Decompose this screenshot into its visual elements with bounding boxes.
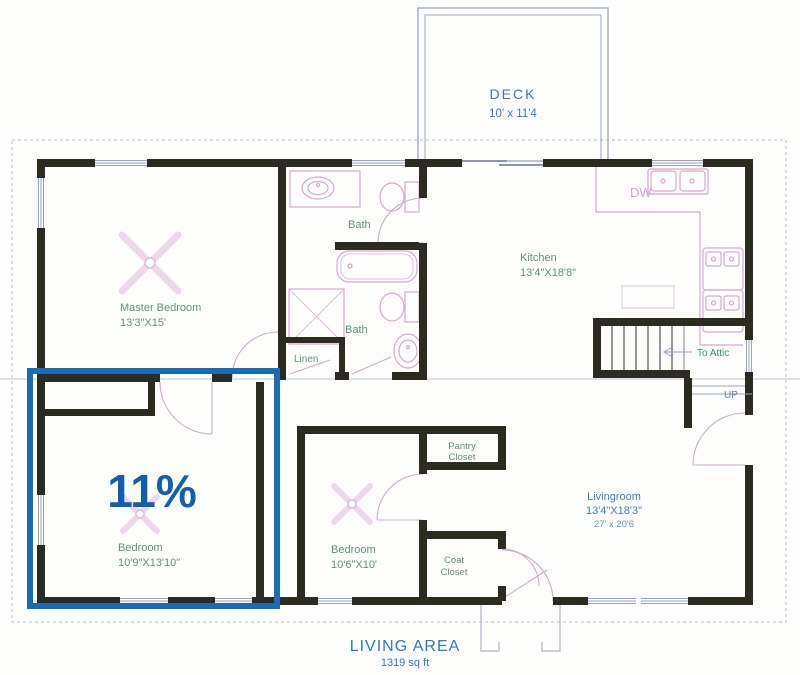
ceiling-fan-icon [122, 235, 178, 291]
stove-icon [703, 248, 743, 290]
sink-icon [394, 334, 422, 368]
bedroom-middle-label: Bedroom [331, 544, 376, 556]
window-icon [215, 599, 252, 604]
bath-lower-label: Bath [345, 324, 368, 336]
back-steps [481, 605, 560, 651]
window-icon [318, 599, 352, 604]
kitchen-peninsula [622, 286, 674, 308]
window-icon [39, 495, 44, 545]
window-icon [588, 599, 636, 604]
vanity-counter [290, 171, 360, 207]
linen-label: Linen [294, 354, 318, 365]
living-area-title: LIVING AREA [350, 638, 461, 655]
bedroom-middle-dims: 10'6"X10' [331, 559, 377, 571]
kitchen-sink-icon [648, 169, 708, 194]
window-icon [352, 161, 405, 166]
bath-upper-label: Bath [348, 219, 371, 231]
window-icon [747, 340, 752, 372]
highlight-percent-label: 11% [107, 465, 197, 517]
deck-label: DECK [490, 86, 537, 102]
walls [37, 159, 753, 605]
window-icon [641, 599, 688, 604]
bedroom-highlighted-label: Bedroom [118, 542, 163, 554]
window-icon [95, 161, 147, 166]
master-bedroom-label: Master Bedroom [120, 302, 201, 314]
sink-icon [302, 177, 334, 199]
pantry-closet-label: Pantry [448, 441, 476, 452]
coat-closet-label: Coat [444, 555, 464, 566]
window-icon [652, 161, 703, 166]
floor-plan-drawing: DECK 10' x 11'4 Master Bedroom 13'3"X15'… [0, 0, 800, 675]
bedroom-highlighted-dims: 10'9"X13'10" [118, 557, 180, 569]
bathtub-icon [337, 251, 417, 282]
bath-lower-fixtures [289, 251, 422, 368]
toilet-icon [405, 292, 419, 322]
kitchen-dims: 13'4"X18'8" [520, 267, 576, 279]
livingroom-label: Livingroom [587, 491, 641, 503]
coat-closet-label2: Closet [441, 567, 468, 578]
pantry-closet-label2: Closet [449, 452, 476, 463]
stair-treads [612, 326, 745, 394]
toilet-icon [405, 182, 419, 212]
deck-outline [418, 8, 608, 161]
window-icon [120, 599, 168, 604]
door-swings [160, 198, 745, 601]
to-attic-arrow-icon [664, 348, 692, 356]
livingroom-dims: 13'4"X18'3" [586, 505, 642, 517]
window-icon [39, 178, 44, 228]
livingroom-dims2: 27' x 20'6 [594, 519, 634, 530]
up-label: UP [724, 390, 738, 401]
master-bedroom-dims: 13'3"X15' [120, 317, 166, 329]
kitchen-label: Kitchen [520, 252, 557, 264]
floor-plan-screenshot: DECK 10' x 11'4 Master Bedroom 13'3"X15'… [0, 0, 800, 675]
living-area-subtitle: 1319 sq ft [381, 657, 429, 669]
ceiling-fan-icon [334, 486, 370, 522]
deck-dims: 10' x 11'4 [489, 108, 537, 120]
to-attic-label: To Attic [697, 348, 729, 359]
bath-upper-fixtures [290, 171, 419, 212]
dishwasher-label: DW [630, 185, 652, 200]
